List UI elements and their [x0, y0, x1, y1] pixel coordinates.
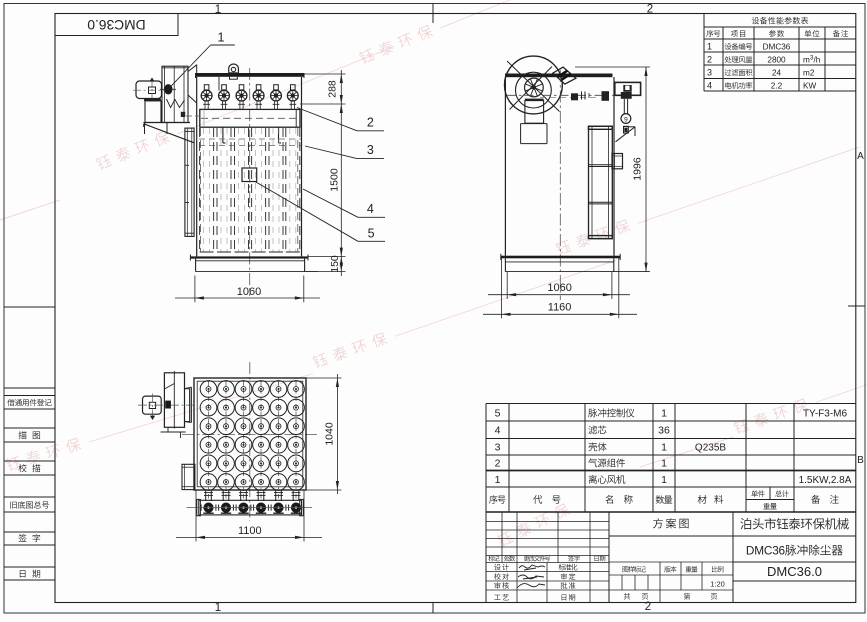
svg-text:1160: 1160	[548, 302, 572, 314]
svg-text:3: 3	[495, 442, 501, 454]
svg-text:1.5KW,2.8A: 1.5KW,2.8A	[799, 475, 852, 486]
svg-text:D: D	[746, 544, 755, 558]
svg-text:5: 5	[495, 408, 501, 420]
svg-text:1: 1	[661, 442, 667, 454]
svg-text:1500: 1500	[329, 168, 341, 192]
svg-text:B: B	[857, 455, 864, 466]
svg-text:5: 5	[368, 227, 375, 241]
svg-text:1: 1	[661, 408, 667, 420]
svg-text:2: 2	[707, 55, 712, 65]
svg-text:2: 2	[367, 116, 374, 130]
svg-text:DMC36: DMC36	[763, 42, 791, 51]
svg-text:3: 3	[707, 68, 712, 78]
svg-text:TY-F3-M6: TY-F3-M6	[803, 409, 848, 420]
svg-text:1: 1	[661, 458, 667, 470]
svg-text:6: 6	[779, 544, 786, 558]
svg-text:3: 3	[367, 143, 374, 157]
svg-text:9: 9	[624, 116, 628, 123]
svg-text:1:20: 1:20	[710, 580, 725, 589]
svg-text:2: 2	[645, 601, 651, 613]
svg-text:4: 4	[707, 81, 712, 91]
svg-text:4: 4	[495, 425, 501, 437]
svg-text:2.2: 2.2	[771, 81, 783, 90]
svg-text:2: 2	[647, 4, 653, 16]
svg-text:1: 1	[215, 602, 221, 614]
svg-text:1: 1	[218, 31, 225, 45]
svg-text:1040: 1040	[323, 422, 335, 446]
svg-text:Q235B: Q235B	[695, 443, 726, 454]
svg-text:DMC36.0: DMC36.0	[87, 17, 146, 32]
svg-text:4: 4	[367, 202, 374, 216]
svg-text:1100: 1100	[238, 525, 262, 537]
svg-text:A: A	[857, 151, 864, 162]
svg-text:1060: 1060	[237, 286, 261, 298]
svg-text:24: 24	[772, 68, 782, 77]
svg-text:150: 150	[329, 255, 341, 273]
svg-text:2: 2	[495, 458, 501, 470]
svg-text:36: 36	[658, 425, 670, 437]
svg-text:1: 1	[215, 4, 221, 16]
svg-text:2800: 2800	[767, 55, 786, 64]
svg-text:M: M	[754, 544, 764, 558]
svg-text:288: 288	[327, 80, 339, 98]
svg-text:1: 1	[707, 42, 712, 52]
svg-text:1: 1	[661, 474, 667, 486]
svg-text:DMC36.0: DMC36.0	[767, 564, 822, 579]
svg-text:1060: 1060	[547, 282, 571, 294]
svg-text:KW: KW	[803, 81, 816, 90]
svg-text:m2: m2	[803, 68, 815, 77]
svg-text:1: 1	[495, 474, 501, 486]
svg-text:1996: 1996	[632, 157, 644, 181]
